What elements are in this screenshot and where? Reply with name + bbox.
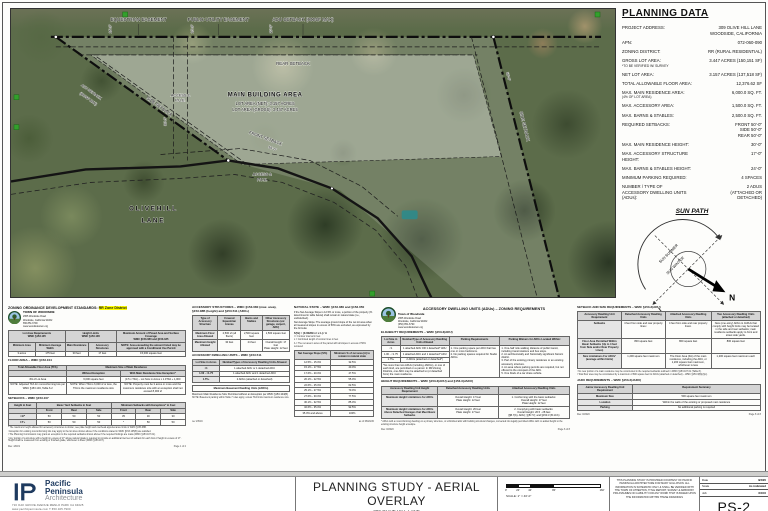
planning-data-title: PLANNING DATA bbox=[622, 8, 762, 19]
eligibility-table: Lot Size in Acres Number/Type of Accesso… bbox=[381, 336, 570, 378]
planning-data-row: TOTAL ALLOWABLE FLOOR AREA:12,376.62 SF bbox=[622, 81, 762, 87]
mini-table: Accessory Dwelling Unit RequirementDetac… bbox=[577, 311, 761, 369]
scale-field-value: As indicated bbox=[749, 484, 766, 488]
sheet-title-block: PLANNING STUDY - AERIAL OVERLAY 309 OLIV… bbox=[296, 477, 498, 511]
mini-table: Net Average Slope (S%)Minimum % of net a… bbox=[294, 350, 374, 417]
label-access-pue-1b: P.U.E. bbox=[175, 99, 185, 103]
north-label: N bbox=[729, 293, 735, 303]
setback-rev: Rev. 8/2020 bbox=[577, 413, 590, 416]
zoning-doc-footer: Rev. 4/8/21 Page 1 of 2 bbox=[8, 445, 186, 448]
info-row-job: Job XXXX bbox=[700, 490, 768, 497]
elig-parking: 1. One parking space per ADU that has on… bbox=[449, 346, 500, 378]
date-label: Date bbox=[702, 478, 708, 482]
label-lot-area-gross: LOT AREA (GROSS): 3.447 ACRES bbox=[232, 107, 298, 112]
mini-table: Height in FeetBasic Yard Setbacks in Fee… bbox=[8, 402, 186, 426]
elig-h3: Parking Requirements bbox=[449, 337, 500, 346]
sheet-title: PLANNING STUDY - AERIAL OVERLAY bbox=[296, 480, 497, 508]
natural-state-title: NATURAL STATE – WMC §153.080 and §153.05… bbox=[294, 306, 374, 310]
town-address: TOWN OF WOODSIDE2955 Woodside RoadWoodsi… bbox=[23, 311, 55, 327]
zoning-table-lot-height: Lot Area Requirements WMC §153.105Height… bbox=[8, 330, 186, 357]
setback-doc-footer: Rev. 8/2020 Page 8 of 8 bbox=[577, 413, 761, 416]
setbacks-table: Height in FeetBasic Yard Setbacks in Fee… bbox=[8, 402, 186, 426]
adu-requirements-doc: ACCESSORY DWELLING UNITS (ADUs) – ZONING… bbox=[381, 306, 570, 472]
elig-h1: Lot Size in Acres bbox=[382, 337, 401, 346]
firm-name-line2: Peninsula bbox=[45, 488, 83, 496]
jadu-title: JADU REQUIREMENTS – WMC §153.3(JADU) bbox=[577, 379, 761, 383]
adu-doc-footer: Rev. 8/2020 Page 6 of 8 bbox=[381, 428, 570, 431]
slope-text: Net Average Slope: The average ground sl… bbox=[294, 321, 374, 330]
scale-tick: 20' bbox=[516, 489, 519, 492]
planning-data-row: MAX. BARNS & STABLES:2,500.0 SQ. FT. bbox=[622, 113, 762, 119]
scale-field-label: Scale bbox=[702, 484, 709, 488]
floor-area-table: Total Allowable Floor Area (TFA)Maximum … bbox=[8, 365, 186, 395]
scale-tick: 80' bbox=[552, 489, 555, 492]
slope-formula: S(%) = (0.00229 x I x L) / A bbox=[294, 332, 374, 335]
label-access-pue-2b: P.U.E. bbox=[257, 178, 267, 182]
label-equestrian-easement: EQUESTRIAN EASEMENT bbox=[110, 17, 166, 22]
elig-note: *No more than two ADUs (including JADUs)… bbox=[382, 363, 450, 378]
label-main-building-area: MAIN BUILDING AREA bbox=[228, 93, 303, 99]
adu-town-address: Town of Woodside2955 Woodside RoadWoodsi… bbox=[398, 313, 570, 329]
table-row: Maximum Floor Area Allowed2,500 sf (all … bbox=[193, 331, 290, 340]
zoning-standards-doc: ZONING ORDINANCE DEVELOPMENT STANDARDS: … bbox=[8, 306, 186, 472]
planning-data-row: PROJECT ADDRESS:309 OLIVE HILL LANE WOOD… bbox=[622, 25, 762, 36]
table-row: NOTE: Adjusted TFA for nonconforming lot… bbox=[9, 382, 186, 394]
list-item: www.woodsidetown.org bbox=[23, 325, 55, 328]
label-access-pue-1a: ACCESS & bbox=[171, 94, 191, 98]
accessory-structures-doc: ACCESSORY STRUCTURES – WMC §153.080 (max… bbox=[192, 306, 374, 472]
pacific-peninsula-logo-icon bbox=[12, 481, 40, 502]
mini-table: Lot Size in AcresNumber/Types of Accesso… bbox=[192, 359, 290, 383]
dim-50-side: 50'-0" bbox=[505, 72, 511, 82]
sun-winter-label: SUN WINTER bbox=[666, 256, 686, 276]
map-overlay: EQUESTRIAN EASEMENT PUBLIC UTILITY EASEM… bbox=[11, 9, 615, 298]
table-row: Maximum Height Limitations for ADUs Abov… bbox=[382, 407, 570, 419]
accessory-page: as of 08/20/20 bbox=[359, 420, 374, 423]
list-item: A = The net area in acres of the parcel … bbox=[294, 343, 374, 349]
label-public-utility-easement: PUBLIC UTILITY EASEMENT bbox=[188, 17, 249, 22]
planning-data-row: MINIMUM PARKING REQUIRED:4 SPACES bbox=[622, 175, 762, 181]
planning-data-row: NUMBER / TYPE OF ACCESSORY DWELLING UNIT… bbox=[622, 184, 762, 201]
adu-doc-header-block: ACCESSORY DWELLING UNITS (ADUs) – ZONING… bbox=[381, 307, 570, 329]
planning-data-row: NET LOT AREA:3.157 ACRES (137,518 SF) bbox=[622, 72, 762, 78]
elig-waivers: 1. One-half mile walking distance of pub… bbox=[500, 346, 570, 378]
firm-name-line3: Architecture bbox=[45, 495, 83, 503]
height-requirements-table: Accessory Dwelling Unit Height Requireme… bbox=[381, 386, 570, 420]
disclaimer: THIS PLANNING STUDY IS PROVIDED COURTESY… bbox=[610, 477, 700, 511]
planning-data-row: APN:072-060-090 bbox=[622, 40, 762, 46]
sheet-info-block: Date 3/3/20 Scale As indicated Job XXXX … bbox=[700, 477, 768, 511]
basement-note: NOTE: Basement parking within Table 7 ru… bbox=[192, 397, 290, 400]
scale-tick: 40' bbox=[528, 489, 531, 492]
zoning-page: Page 1 of 2 bbox=[174, 445, 186, 448]
setback-size-table: Accessory Dwelling Unit RequirementDetac… bbox=[577, 311, 761, 369]
planning-data-row: ZONING DISTRICT:RR (RURAL RESIDENTIAL) bbox=[622, 49, 762, 55]
graphic-scale: 0' 20' 40' 80' 160' SCALE: 1" = 40'-0" bbox=[498, 477, 610, 511]
scale-ticks: 0' 20' 40' 80' 160' bbox=[506, 488, 601, 493]
dim-20: 20'-0" bbox=[190, 24, 194, 33]
elig-h2: Number/Type of Accessory Dwelling Units … bbox=[400, 337, 449, 346]
firm-name: Pacific Peninsula Architecture bbox=[45, 480, 83, 503]
planning-data-row: REQUIRED SETBACKS:FRONT 50'-0" SIDE 50'-… bbox=[622, 122, 762, 139]
dim-20b: 20'-0" bbox=[269, 24, 273, 33]
list-item: ³ Any portion of a structure with a heig… bbox=[8, 438, 186, 444]
label-lot-area-net: LOT AREA (NET): 3.157 ACRES bbox=[236, 101, 295, 106]
town-of-woodside-block: TOWN OF WOODSIDE2955 Woodside RoadWoodsi… bbox=[8, 311, 186, 327]
slope-table: Net Average Slope (S%)Minimum % of net a… bbox=[294, 350, 374, 417]
planning-data-rows: PROJECT ADDRESS:309 OLIVE HILL LANE WOOD… bbox=[622, 25, 762, 201]
natural-state-text: If the Net Average Slope is 12.5% or mor… bbox=[294, 311, 374, 320]
accessory-structures-table: Type of Accessory StructureCovered Eques… bbox=[192, 315, 290, 352]
planning-data-row: MAX. ACCESSORY STRUCTURE HEIGHT:17'-0" bbox=[622, 151, 762, 162]
basement-line: Maximum Main Residence Size Permitted wi… bbox=[192, 393, 290, 396]
list-item: www.woodsidetown.org bbox=[398, 326, 570, 329]
list-item: L = Combined length of contour lines in … bbox=[294, 339, 374, 342]
mini-table: Junior Accessory Dwelling Unit Requireme… bbox=[577, 384, 761, 411]
table-row: Floor Area Permitted Within Basic Setbac… bbox=[578, 339, 761, 354]
firm-address: 716 OAK GROVE AVENUE MENLO PARK CA 94025 bbox=[12, 504, 295, 507]
setback-footnotes: ¹ No new portion of a main residence may… bbox=[577, 371, 761, 377]
adu-lot-table: Lot Size in AcresNumber/Types of Accesso… bbox=[192, 359, 290, 383]
mini-table: Lot Area Requirements WMC §153.105Height… bbox=[8, 330, 186, 357]
dim-30: 30'-0" bbox=[163, 117, 167, 126]
label-leaders bbox=[139, 24, 303, 35]
dim-16: 16'-0" bbox=[109, 24, 113, 33]
sun-path-title: SUN PATH bbox=[622, 208, 762, 215]
scale-label: SCALE: 1" = 40'-0" bbox=[506, 494, 601, 498]
adu-lot-title: ACCESSORY DWELLING UNITS – WMC §153.511 bbox=[192, 354, 290, 358]
planning-data-row: MAX. MAIN RESIDENCE HEIGHT:30'-0" bbox=[622, 142, 762, 148]
height-requirements-title: HEIGHT REQUIREMENTS – WMC §153.3(ADU) an… bbox=[381, 380, 570, 384]
town-of-woodside-logo-icon bbox=[381, 307, 396, 322]
drawing-sheet: EQUESTRIAN EASEMENT PUBLIC UTILITY EASEM… bbox=[0, 0, 768, 511]
table-row: 17'+505050*5050 bbox=[9, 419, 186, 425]
mini-table: Total Allowable Floor Area (TFA)Maximum … bbox=[8, 365, 186, 395]
info-row-scale: Scale As indicated bbox=[700, 484, 768, 491]
adu-rev: Rev. 8/2020 bbox=[381, 428, 394, 431]
title-block: Pacific Peninsula Architecture 716 OAK G… bbox=[0, 477, 768, 511]
accessory-rev: rev 2/8/19 bbox=[192, 420, 203, 423]
list-item: * The maximum height allowed for accesso… bbox=[8, 427, 186, 430]
list-item: ² Total floor area may be constrained by… bbox=[577, 374, 761, 377]
info-row-date: Date 3/3/20 bbox=[700, 477, 768, 484]
scale-tick: 160' bbox=[600, 489, 605, 492]
mini-table: Accessory Dwelling Unit Height Requireme… bbox=[381, 386, 570, 420]
table-row: ParkingNo additional parking is required bbox=[578, 405, 761, 411]
scale-tick: 0' bbox=[505, 489, 507, 492]
planning-data-row: MAX. ACCESSORY AREA:1,500.0 SQ. FT. bbox=[622, 103, 762, 109]
mini-table: Type of Accessory StructureCovered Eques… bbox=[192, 315, 290, 352]
accessory-structures-title: ACCESSORY STRUCTURES – WMC §153.080 (max… bbox=[192, 306, 290, 314]
street-name-line1: O L I V E H I L L bbox=[129, 205, 176, 212]
table-row: Maximum Height Allowed30 feet24 feetOver… bbox=[193, 340, 290, 352]
floor-area-title: FLOOR AREA – WMC §153.104 bbox=[8, 359, 186, 363]
planning-data-panel: PLANNING DATA PROJECT ADDRESS:309 OLIVE … bbox=[622, 8, 762, 300]
elig-h4: Parking Waivers for ADUs Located Within: bbox=[500, 337, 570, 346]
table-row: Setbacks4 feet from side and rear proper… bbox=[578, 321, 761, 339]
basement-box: Maximum Basement Dwelling Units (JADUs) bbox=[192, 385, 290, 392]
setbacks-title: SETBACKS – WMC §153.107 bbox=[8, 397, 186, 401]
table-row: 1.75+2 ADUs (attached or detached) bbox=[193, 377, 290, 383]
zoning-rev: Rev. 4/8/21 bbox=[8, 445, 20, 448]
label-side-setback-right: SIDE SETBACK bbox=[519, 111, 531, 142]
label-adu-setback-top: ADU SETBACK (900SF MAX) bbox=[272, 17, 334, 22]
job-label: Job bbox=[702, 491, 707, 495]
eligibility-title: ELIGIBILITY REQUIREMENTS – WMC §153.3(AD… bbox=[381, 331, 570, 335]
north-arrowhead bbox=[712, 280, 725, 292]
table-row: 35.0% and above100% bbox=[294, 411, 373, 417]
formula-notes: I = Contour interval in feetL = Combined… bbox=[294, 336, 374, 349]
label-access-pue-2a: ACCESS & bbox=[253, 172, 273, 176]
planning-data-row: GROSS LOT AREA:*TO BE VERIFIED W/ SURVEY… bbox=[622, 58, 762, 68]
date-value: 3/3/20 bbox=[758, 478, 766, 482]
planning-data-row: MAX. BARNS & STABLES HEIGHT:24'-0" bbox=[622, 166, 762, 172]
zone-district-highlight: RR Zone District bbox=[99, 306, 127, 310]
planning-data-row: MAX. MAIN RESIDENCE AREA:(4% OF LOT AREA… bbox=[622, 90, 762, 100]
street-name-line2: L A N E bbox=[142, 217, 164, 224]
accessory-doc-footer: rev 2/8/19 as of 08/20/20 bbox=[192, 420, 374, 423]
setback-size-title: SETBACK AND SIZE REQUIREMENTS – WMC §153… bbox=[577, 306, 761, 310]
table-row: Size Limitations For ADUs² (average with… bbox=[578, 354, 761, 369]
setback-size-doc: SETBACK AND SIZE REQUIREMENTS – WMC §153… bbox=[577, 306, 761, 472]
jadu-table: Junior Accessory Dwelling Unit Requireme… bbox=[577, 384, 761, 411]
table-row: Maximum Height Limitations for ADUsOvera… bbox=[382, 395, 570, 407]
label-rear-setback: REAR SETBACK bbox=[276, 61, 310, 66]
table-row: 3 acres175 feet30 feet17 feet15,000 squa… bbox=[9, 351, 186, 357]
zoning-doc-header-text: ZONING ORDINANCE DEVELOPMENT STANDARDS: bbox=[8, 306, 99, 310]
sun-axis-summer bbox=[653, 236, 722, 305]
adu-page: Page 6 of 8 bbox=[558, 428, 570, 431]
firm-block: Pacific Peninsula Architecture 716 OAK G… bbox=[0, 477, 296, 511]
zoning-footnotes: * The maximum height allowed for accesso… bbox=[8, 427, 186, 443]
job-value: XXXX bbox=[758, 491, 766, 495]
list-item: ² The Planning Commission may grant an e… bbox=[8, 434, 186, 437]
town-of-woodside-logo-icon bbox=[8, 311, 21, 324]
setback-page: Page 8 of 8 bbox=[749, 413, 761, 416]
aerial-map: EQUESTRIAN EASEMENT PUBLIC UTILITY EASEM… bbox=[10, 8, 616, 298]
adu-footnote: * ADUs with a nonconforming dwelling on … bbox=[381, 421, 570, 427]
sheet-number: PS-2 bbox=[700, 497, 768, 511]
north-arrow bbox=[688, 269, 718, 288]
pool bbox=[402, 210, 418, 219]
